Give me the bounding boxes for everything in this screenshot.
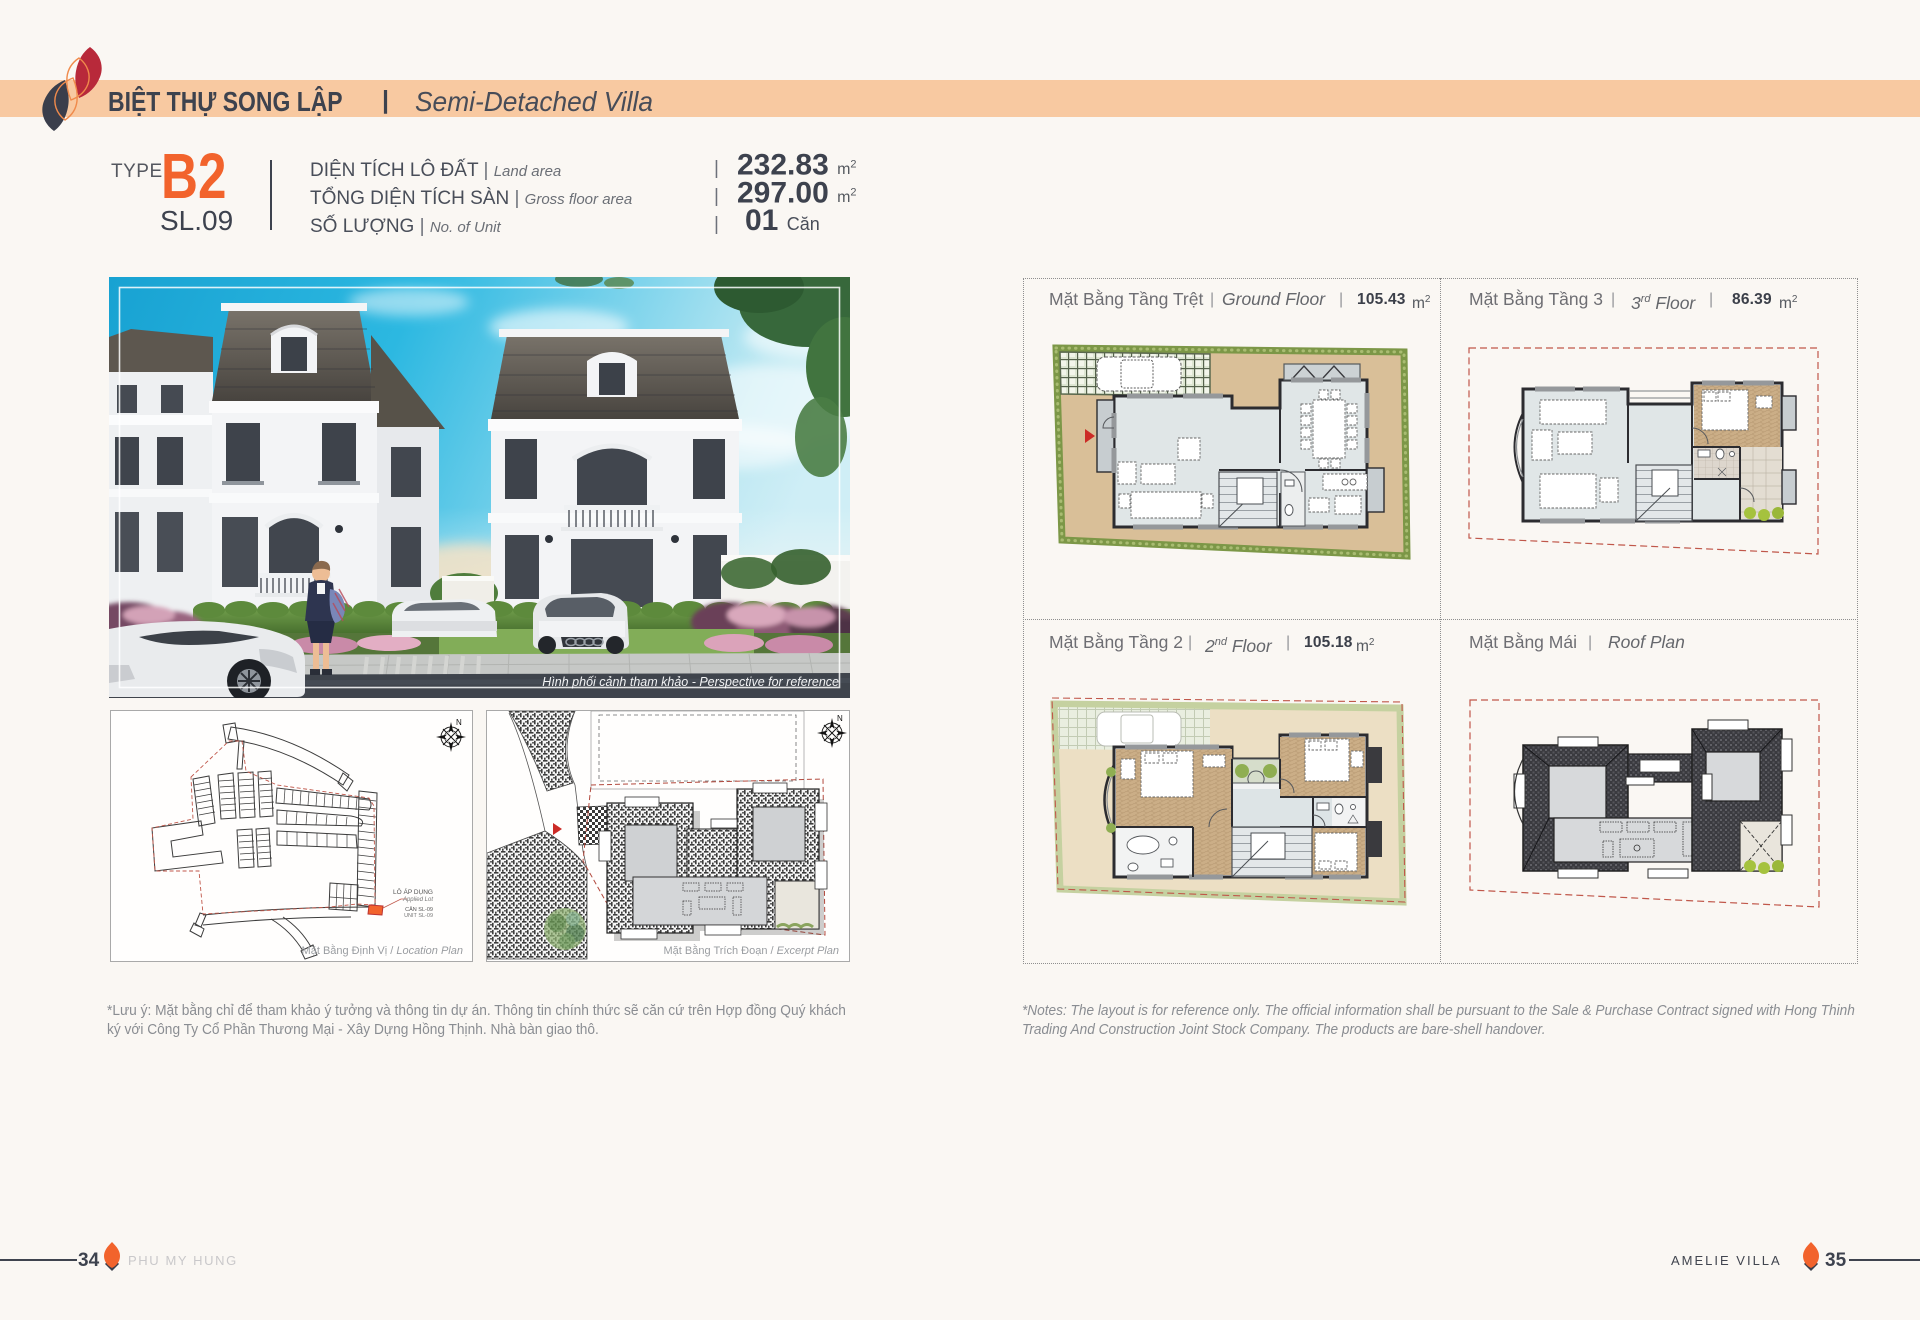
svg-text:UNIT SL-09: UNIT SL-09 (404, 913, 433, 919)
svg-text:N: N (837, 714, 843, 723)
svg-text:N: N (456, 718, 462, 727)
svg-text:LÔ ÁP DỤNG: LÔ ÁP DỤNG (393, 887, 433, 896)
svg-text:CĂN SL-09: CĂN SL-09 (405, 906, 433, 913)
svg-text:Mặt Bằng Trích Đoạn / Excerpt: Mặt Bằng Trích Đoạn / Excerpt Plan (664, 944, 840, 957)
svg-text:Mặt Bằng Định Vị / Location Pl: Mặt Bằng Định Vị / Location Plan (302, 944, 463, 957)
svg-text:Applied Lot: Applied Lot (402, 897, 433, 903)
